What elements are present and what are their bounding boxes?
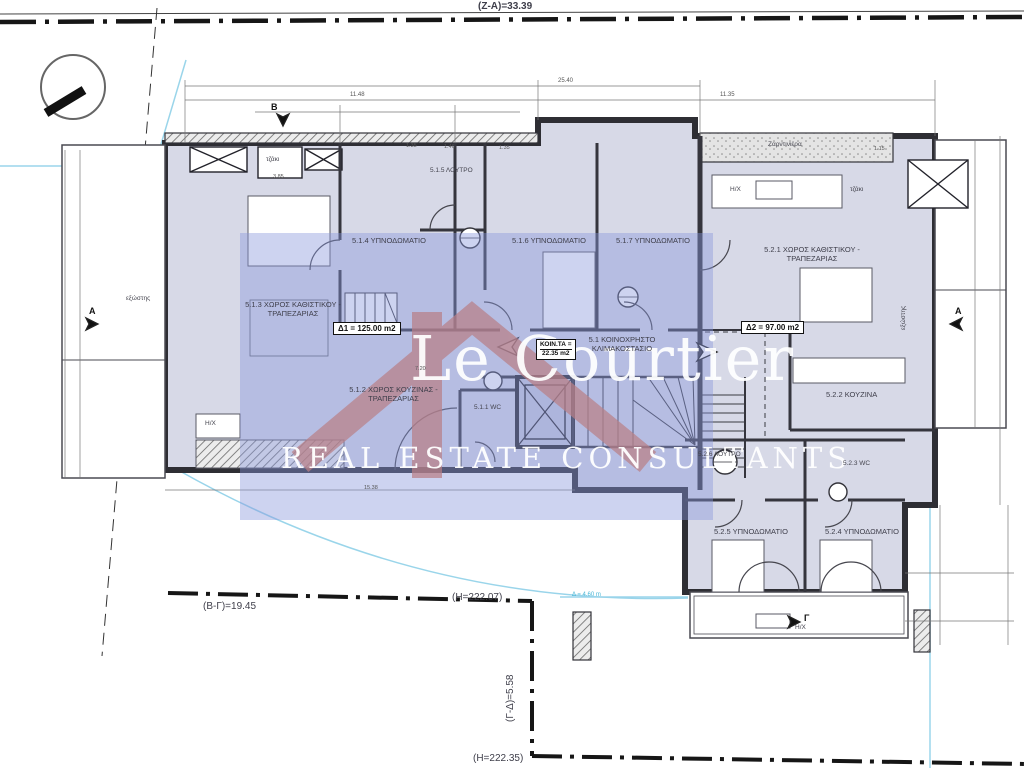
boundary-top-label: (Z-A)=33.39 <box>478 1 532 14</box>
boundary-side-label: (Γ-Δ)=5.58 <box>505 675 518 722</box>
dim-top-total: 25.40 <box>558 78 573 86</box>
room-label-512: 5.1.2 ΧΩΡΟΣ ΚΟΥΖΙΝΑΣ - ΤΡΑΠΕΖΑΡΙΑΣ <box>336 385 451 404</box>
area-box-common-line2: 22.35 m2 <box>540 349 572 358</box>
elevation-label-1: (H=222.07) <box>452 592 502 605</box>
contour-label: Δ = 4.60 m <box>572 592 601 600</box>
watermark-brand: Le Courtier <box>410 322 795 395</box>
boundary-bottom-label: (B-Γ)=19.45 <box>203 601 256 614</box>
section-marker-g: Γ <box>804 613 809 624</box>
room-label-526: 5.2.6 ΛΟΥΤΡΟ <box>698 451 741 459</box>
hx-label-left: H/X <box>205 420 216 428</box>
fireplace-label-right: τζάκι <box>850 186 863 194</box>
room-label-515: 5.1.5 ΛΟΥΤΡΟ <box>430 167 473 175</box>
room-label-513: 5.1.3 ΧΩΡΟΣ ΚΑΘΙΣΤΙΚΟΥ - ΤΡΑΠΕΖΑΡΙΑΣ <box>233 300 353 319</box>
dim-w6: 15.38 <box>364 485 378 492</box>
room-label-517: 5.1.7 ΥΠΝΟΔΩΜΑΤΙΟ <box>616 236 690 245</box>
hx-label-bottom: H/X <box>795 624 806 632</box>
dim-w5: 7.20 <box>415 366 426 373</box>
section-marker-a-right: A <box>955 306 962 317</box>
room-label-525: 5.2.5 ΥΠΝΟΔΩΜΑΤΙΟ <box>714 527 788 536</box>
room-label-516: 5.1.6 ΥΠΝΟΔΩΜΑΤΙΟ <box>512 236 586 245</box>
section-marker-b: B <box>271 102 278 113</box>
room-label-514: 5.1.4 ΥΠΝΟΔΩΜΑΤΙΟ <box>352 236 426 245</box>
fireplace-label-left: τζάκι <box>266 156 279 164</box>
room-label-524: 5.2.4 ΥΠΝΟΔΩΜΑΤΙΟ <box>825 527 899 536</box>
balcony-label-right: εξώστης <box>900 306 908 330</box>
area-box-d1: Δ1 = 125.00 m2 <box>333 322 401 335</box>
dim-w3: 1.35 <box>499 145 510 152</box>
hx-label-top: H/X <box>730 186 741 194</box>
room-label-511: 5.1.1 WC <box>474 404 501 412</box>
dim-top-right: 11.35 <box>720 92 735 100</box>
dim-w7: 1.15 <box>874 146 885 153</box>
dim-w1: 1.35 <box>406 143 417 150</box>
dim-w2: 1.46 <box>444 144 455 151</box>
dim-top-left: 11.48 <box>350 92 365 100</box>
area-box-d2: Δ2 = 97.00 m2 <box>741 321 804 334</box>
dim-w4: 3.85 <box>273 174 284 181</box>
area-box-common-line1: ΚΟΙΝ.ΤΑ = <box>540 341 572 349</box>
elevation-label-2: (H=222.35) <box>473 753 523 766</box>
room-label-522: 5.2.2 ΚΟΥΖΙΝΑ <box>826 390 877 399</box>
room-label-521: 5.2.1 ΧΩΡΟΣ ΚΑΘΙΣΤΙΚΟΥ - ΤΡΑΠΕΖΑΡΙΑΣ <box>757 245 867 264</box>
section-marker-a-left: A <box>89 306 96 317</box>
balcony-label-left: εξώστης <box>126 295 150 303</box>
north-arrow-icon <box>41 55 105 119</box>
floor-plan-sheet: Le Courtier REAL ESTATE CONSULTANTS (Z-A… <box>0 0 1024 768</box>
watermark-tagline: REAL ESTATE CONSULTANTS <box>281 441 852 475</box>
room-label-523: 5.2.3 WC <box>843 460 870 468</box>
room-label-51-stair: 5.1 ΚΟΙΝΟΧΡΗΣΤΟ ΚΛΙΜΑΚΟΣΤΑΣΙΟ <box>568 335 676 354</box>
planter-label: Ζαρντινιέρα <box>768 141 802 149</box>
